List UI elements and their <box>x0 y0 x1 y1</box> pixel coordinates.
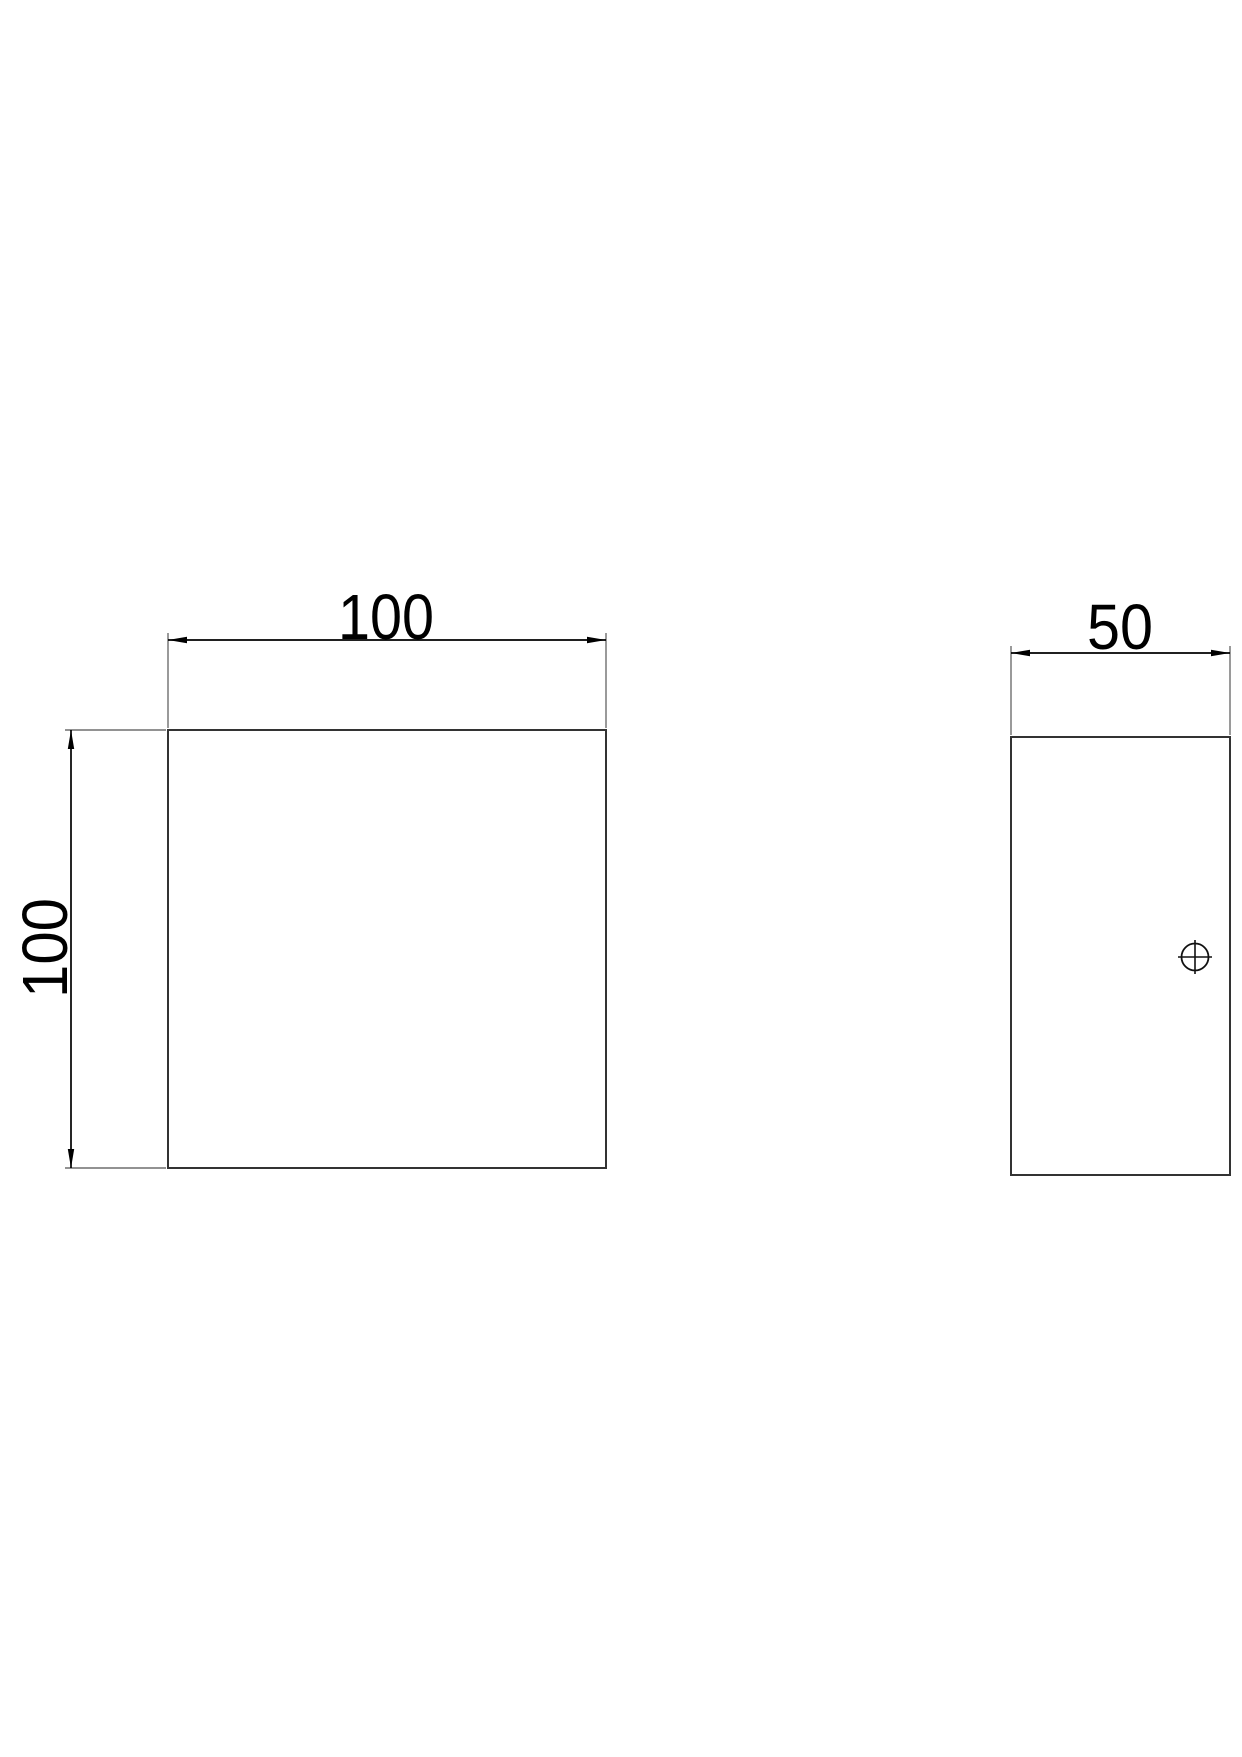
front-height-dimension-label: 100 <box>9 898 81 998</box>
arrowhead-left-icon <box>1011 650 1030 656</box>
arrowhead-down-icon <box>68 1149 74 1168</box>
arrowhead-up-icon <box>68 730 74 749</box>
front-view-dimension-labels: 100 100 <box>9 581 434 998</box>
side-view: 50 <box>1011 591 1230 1175</box>
front-view: 100 100 <box>9 581 606 1168</box>
side-view-outline <box>1011 737 1230 1175</box>
front-view-arrowheads <box>68 637 606 1168</box>
front-view-extension-lines <box>65 633 606 1168</box>
front-view-dimension-lines <box>71 640 606 1168</box>
arrowhead-right-icon <box>1211 650 1230 656</box>
arrowhead-right-icon <box>587 637 606 643</box>
side-width-dimension-label: 50 <box>1087 591 1153 663</box>
side-view-outline-group <box>1011 737 1230 1175</box>
arrowhead-left-icon <box>168 637 187 643</box>
front-width-dimension-label: 100 <box>338 581 434 653</box>
side-view-dimension-labels: 50 <box>1087 591 1153 663</box>
front-view-outline <box>168 730 606 1168</box>
center-mark-icon <box>1178 940 1212 974</box>
front-view-outline-group <box>168 730 606 1168</box>
page: { "drawing": { "front_view": { "width_di… <box>0 0 1242 1757</box>
drawing-sheet: 100 100 <box>0 0 1242 1757</box>
technical-drawing-canvas: 100 100 <box>0 0 1242 1757</box>
